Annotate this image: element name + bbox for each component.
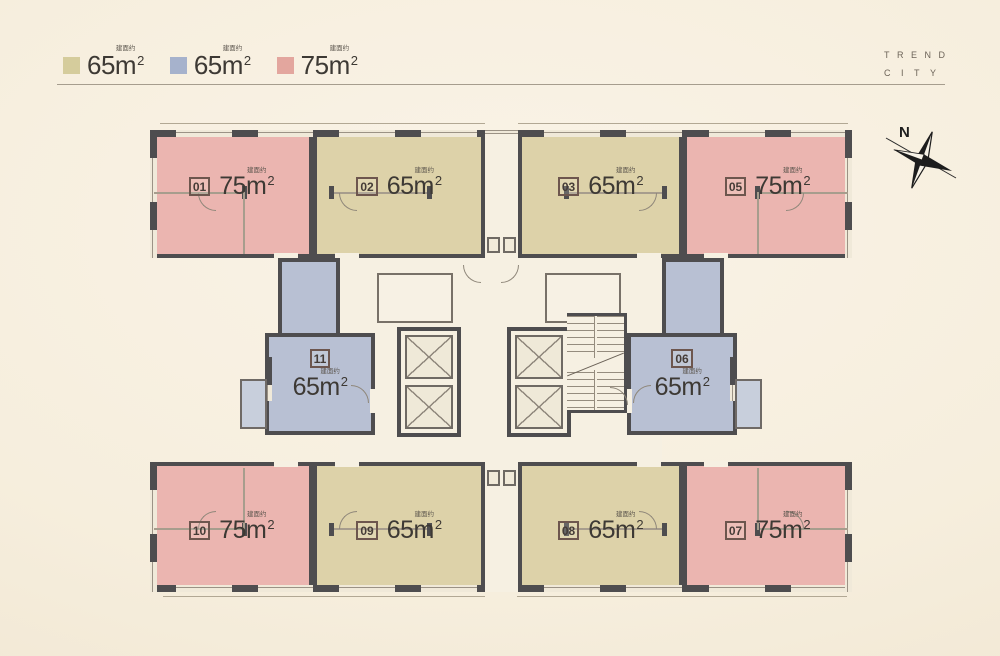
unit-01-region: 01 75m建面约2: [150, 130, 313, 258]
legend-swatch-pink: [277, 57, 294, 74]
area-prefix: 建面约: [330, 46, 350, 53]
elevator-icon: [515, 385, 563, 429]
area-prefix: 建面约: [783, 168, 803, 175]
unit-number: 07: [725, 521, 746, 540]
window-strip: [313, 130, 485, 137]
shaft-box: [503, 470, 516, 486]
window-strip: [683, 585, 852, 592]
unit-08-region: 08 65m建面约2: [518, 462, 683, 592]
service-shaft: [485, 130, 518, 258]
shaft-box: [487, 237, 500, 253]
area-prefix: 建面约: [116, 46, 136, 53]
door-gap: [637, 461, 661, 467]
shaft-box: [503, 237, 516, 253]
unit-area: 75m建面约2: [755, 174, 810, 199]
unit-number: 03: [558, 177, 579, 196]
area-prefix: 建面约: [415, 168, 435, 175]
unit-area: 65m建面约2: [588, 174, 643, 199]
door-gap: [274, 461, 298, 467]
legend: 65m建面约2 65m建面约2 75m建面约2: [63, 52, 357, 78]
unit-number: 11: [310, 349, 331, 368]
brand-line1: TREND: [884, 46, 953, 64]
door-gap: [637, 253, 661, 259]
legend-item-75-pink: 75m建面约2: [277, 52, 358, 78]
unit-number: 05: [725, 177, 746, 196]
sill-line: [518, 123, 848, 124]
unit-area: 75m建面约2: [219, 518, 274, 543]
area-prefix: 建面约: [616, 168, 636, 175]
page-background: 65m建面约2 65m建面约2 75m建面约2 TREND CITY N: [0, 0, 1000, 656]
unit-label: 10 75m建面约2: [154, 518, 309, 543]
unit-area: 75m建面约2: [755, 518, 810, 543]
area-prefix: 建面约: [682, 369, 702, 376]
unit-10-region: 10 75m建面约2: [150, 462, 313, 592]
window-strip: [150, 585, 313, 592]
shaft-box: [487, 470, 500, 486]
service-shaft: [485, 462, 518, 592]
unit-09-region: 09 65m建面约2: [313, 462, 485, 592]
door-gap: [335, 461, 359, 467]
unit-area: 65m建面约2: [655, 375, 710, 400]
window-strip: [150, 130, 313, 137]
window-strip: [518, 130, 683, 137]
unit-number: 08: [558, 521, 579, 540]
unit-number: 09: [356, 521, 377, 540]
unit-label: 01 75m建面约2: [154, 174, 309, 199]
unit-02-region: 02 65m建面约2: [313, 130, 485, 258]
unit-label: 11 65m建面约2: [269, 349, 371, 400]
unit-area: 75m建面约2: [219, 174, 274, 199]
window-strip: [683, 130, 852, 137]
unit-07-region: 07 75m建面约2: [683, 462, 852, 592]
unit-label: 05 75m建面约2: [687, 174, 848, 199]
elevator-icon: [405, 335, 453, 379]
area-prefix: 建面约: [247, 512, 267, 519]
unit-11-region: 11 65m建面约2: [265, 333, 375, 435]
unit-area: 65m建面约2: [293, 375, 348, 400]
unit-03-region: 03 65m建面约2: [518, 130, 683, 258]
unit-area: 65m建面约2: [588, 518, 643, 543]
elevator-icon: [405, 385, 453, 429]
legend-item-65-tan: 65m建面约2: [63, 52, 144, 78]
legend-swatch-tan: [63, 57, 80, 74]
sill-line: [517, 596, 847, 597]
unit-label: 08 65m建面约2: [522, 518, 679, 543]
legend-label: 65m建面约2: [194, 52, 251, 78]
unit-number: 01: [189, 177, 210, 196]
core-room-left: [377, 273, 453, 323]
unit-label: 03 65m建面约2: [522, 174, 679, 199]
area-prefix: 建面约: [415, 512, 435, 519]
brand-logo: TREND CITY: [884, 46, 953, 82]
unit-06-region: 06 65m建面约2: [627, 333, 737, 435]
partition-line: [757, 192, 759, 254]
unit-label: 02 65m建面约2: [317, 174, 481, 199]
sill-line: [160, 123, 485, 124]
window-strip: [313, 585, 485, 592]
unit-area: 65m建面约2: [387, 174, 442, 199]
area-prefix: 建面约: [247, 168, 267, 175]
legend-label: 65m建面约2: [87, 52, 144, 78]
header-divider: [57, 84, 945, 85]
unit-number: 06: [671, 349, 692, 368]
elevator-bank-right: [507, 327, 571, 437]
unit-label: 09 65m建面约2: [317, 518, 481, 543]
floor-plan: 01 75m建面约2 02 65m建面约2: [145, 125, 857, 597]
unit-label: 07 75m建面约2: [687, 518, 848, 543]
partition-line: [243, 192, 245, 254]
window-strip: [518, 585, 683, 592]
unit-number: 02: [356, 177, 377, 196]
area-prefix: 建面约: [783, 512, 803, 519]
unit-06-upper: [662, 258, 724, 337]
legend-label: 75m建面约2: [301, 52, 358, 78]
unit-label: 06 65m建面约2: [631, 349, 733, 400]
legend-swatch-blue: [170, 57, 187, 74]
sill-line: [163, 596, 485, 597]
unit-area: 65m建面约2: [387, 518, 442, 543]
unit-11-upper: [278, 258, 340, 337]
unit-number: 10: [189, 521, 210, 540]
balcony: [240, 379, 267, 429]
elevator-icon: [515, 335, 563, 379]
unit-05-region: 05 75m建面约2: [683, 130, 852, 258]
elevator-bank-left: [397, 327, 461, 437]
area-prefix: 建面约: [616, 512, 636, 519]
brand-line2: CITY: [884, 64, 953, 82]
north-arrow-icon: [884, 130, 960, 192]
legend-item-65-blue: 65m建面约2: [170, 52, 251, 78]
area-prefix: 建面约: [223, 46, 243, 53]
balcony: [735, 379, 762, 429]
door-gap: [704, 461, 728, 467]
area-prefix: 建面约: [320, 369, 340, 376]
